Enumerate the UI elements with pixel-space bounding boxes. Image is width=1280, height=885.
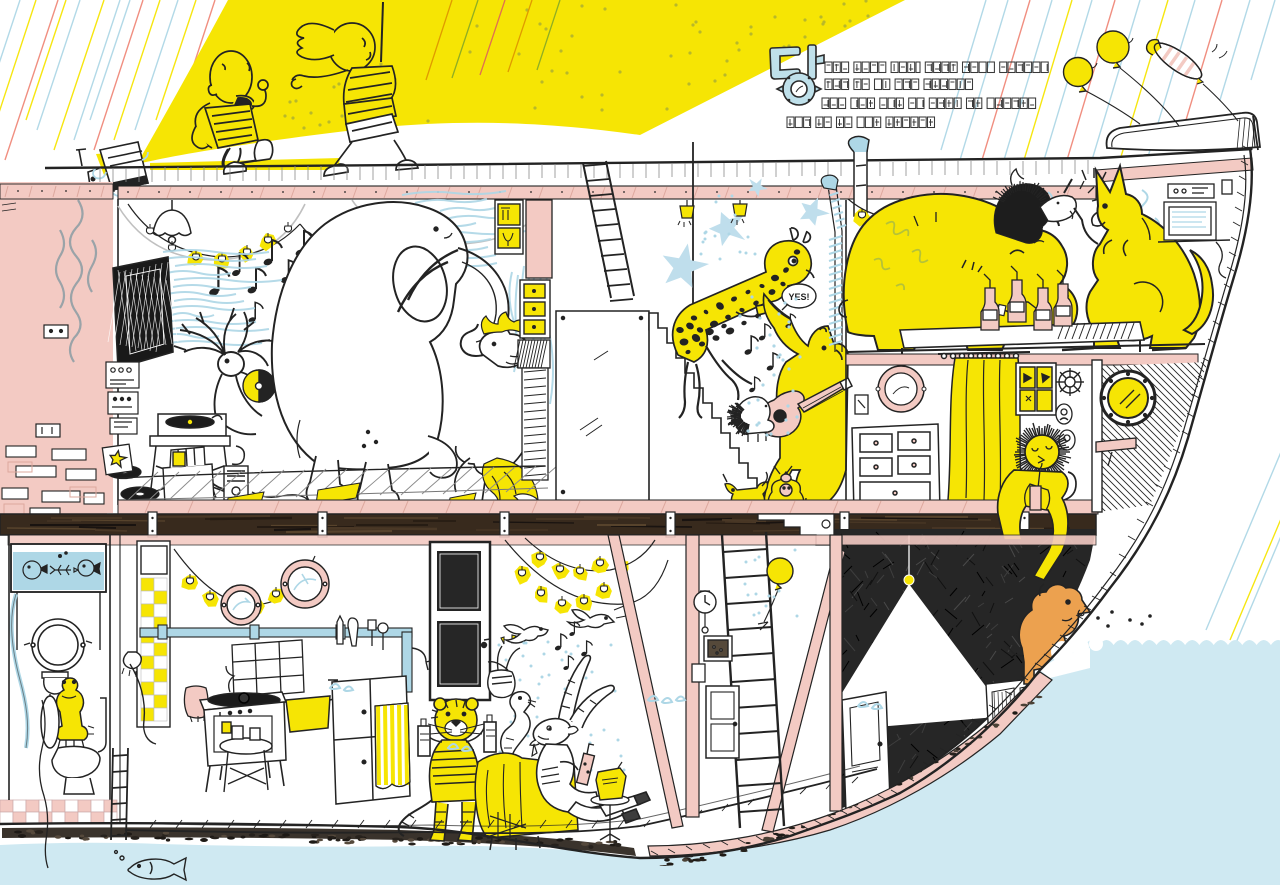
svg-text:YES!: YES! xyxy=(788,292,809,302)
